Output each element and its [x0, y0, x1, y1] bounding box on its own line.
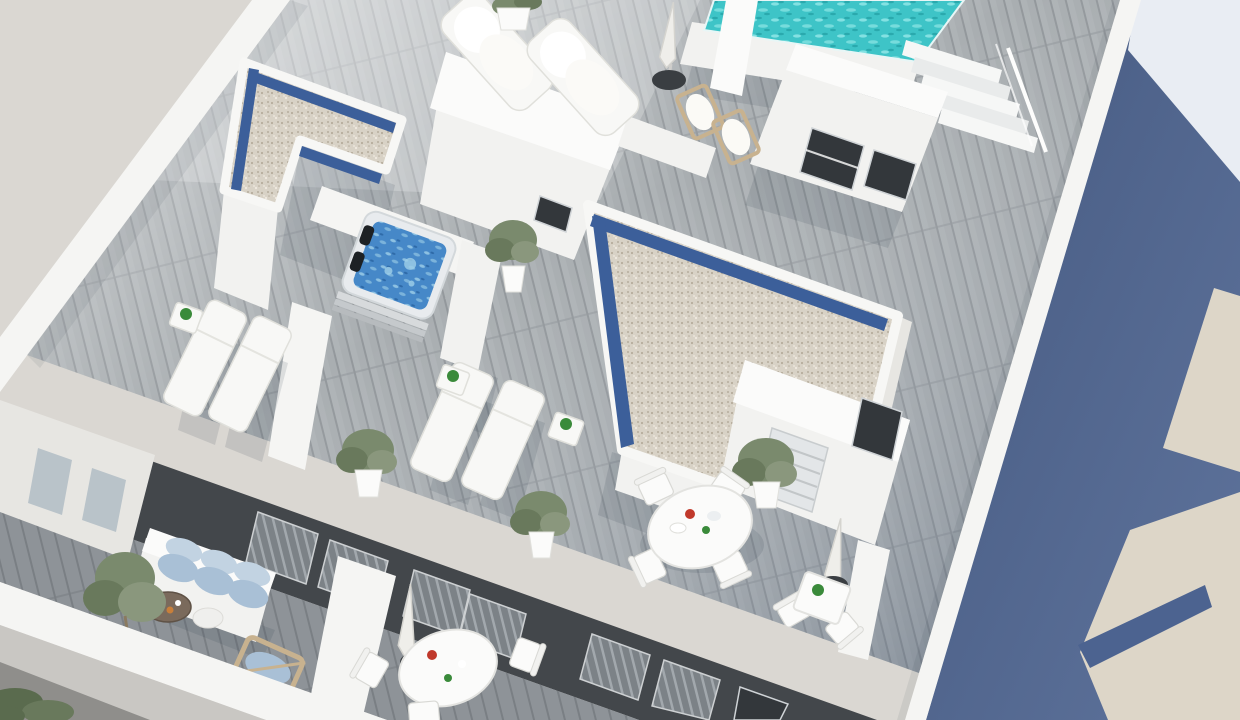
- table-item: [427, 650, 437, 660]
- ottoman: [193, 608, 223, 628]
- table-item: [685, 509, 695, 519]
- table-item: [458, 660, 466, 668]
- coffee-table-item: [175, 600, 181, 606]
- render-stage: [0, 0, 1240, 720]
- plant-pot: [502, 266, 525, 292]
- table-item: [707, 511, 721, 521]
- table-item: [670, 523, 686, 533]
- table-item: [444, 674, 452, 682]
- parasol-base: [652, 70, 686, 90]
- chair: [406, 701, 442, 720]
- table-plant: [560, 418, 572, 430]
- table-plant: [447, 370, 459, 382]
- rooftop-render: [0, 0, 1240, 720]
- table-item: [702, 526, 710, 534]
- table-plant: [812, 584, 824, 596]
- coffee-table-item: [167, 607, 174, 614]
- table-plant: [180, 308, 192, 320]
